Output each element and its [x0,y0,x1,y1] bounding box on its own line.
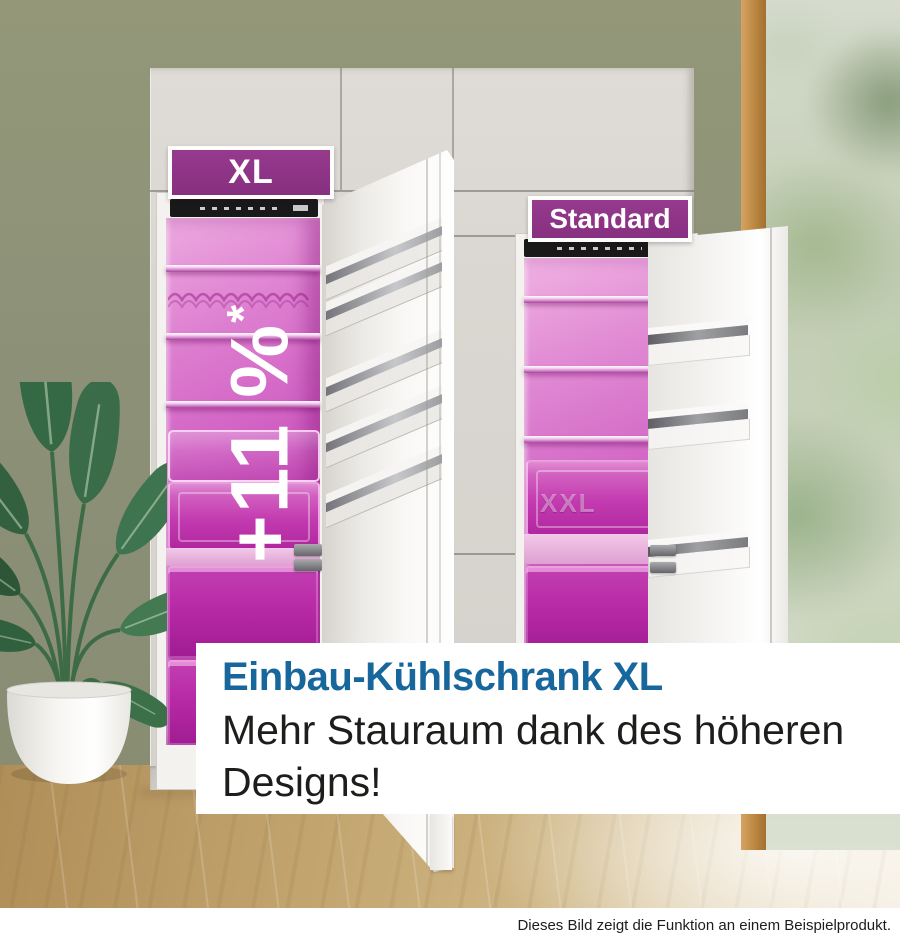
caption-headline: Einbau-Kühlschrank XL [222,653,900,701]
stat-value: +11 % [214,323,305,563]
potted-plant [0,382,167,792]
door-perspective [648,226,788,674]
caption-body-line2: Designs! [222,759,382,805]
plant-stems [20,452,120,712]
pot-rim [7,682,131,698]
badge-xl-label: XL [228,153,273,192]
fridge-xl-door-foot [430,814,452,870]
door-bin [648,318,748,366]
drawer-xxl-label: XXL [540,488,597,519]
plant-leaf [0,610,39,659]
door-bin [648,402,748,450]
plant-leaf [114,579,167,648]
stat-overlay: +11 %* [197,279,289,589]
disclaimer-bar: Dieses Bild zeigt die Funktion an einem … [0,908,900,945]
asterisk: * [217,305,269,323]
control-display [557,247,642,250]
promo-image: +11 %* [0,0,900,945]
cabinet-seam [340,68,342,190]
door-edge-line [770,226,772,660]
fridge-standard-door [648,226,788,660]
fridge-shelf [166,265,320,272]
caption-body-line1: Mehr Stauraum dank des höheren [222,707,844,753]
control-display [200,207,277,210]
caption-panel: Einbau-Kühlschrank XL Mehr Stauraum dank… [196,643,900,814]
badge-standard: Standard [528,196,692,242]
fridge-xl-control-panel [170,199,318,217]
control-button [293,205,308,211]
door-hinge [650,562,676,573]
caption-body: Mehr Stauraum dank des höheren Designs! [222,705,900,808]
badge-xl: XL [168,146,334,199]
plant-leaf [0,424,45,547]
badge-standard-label: Standard [549,203,670,235]
door-hinge [650,545,676,556]
disclaimer-text: Dieses Bild zeigt die Funktion an einem … [517,917,891,934]
